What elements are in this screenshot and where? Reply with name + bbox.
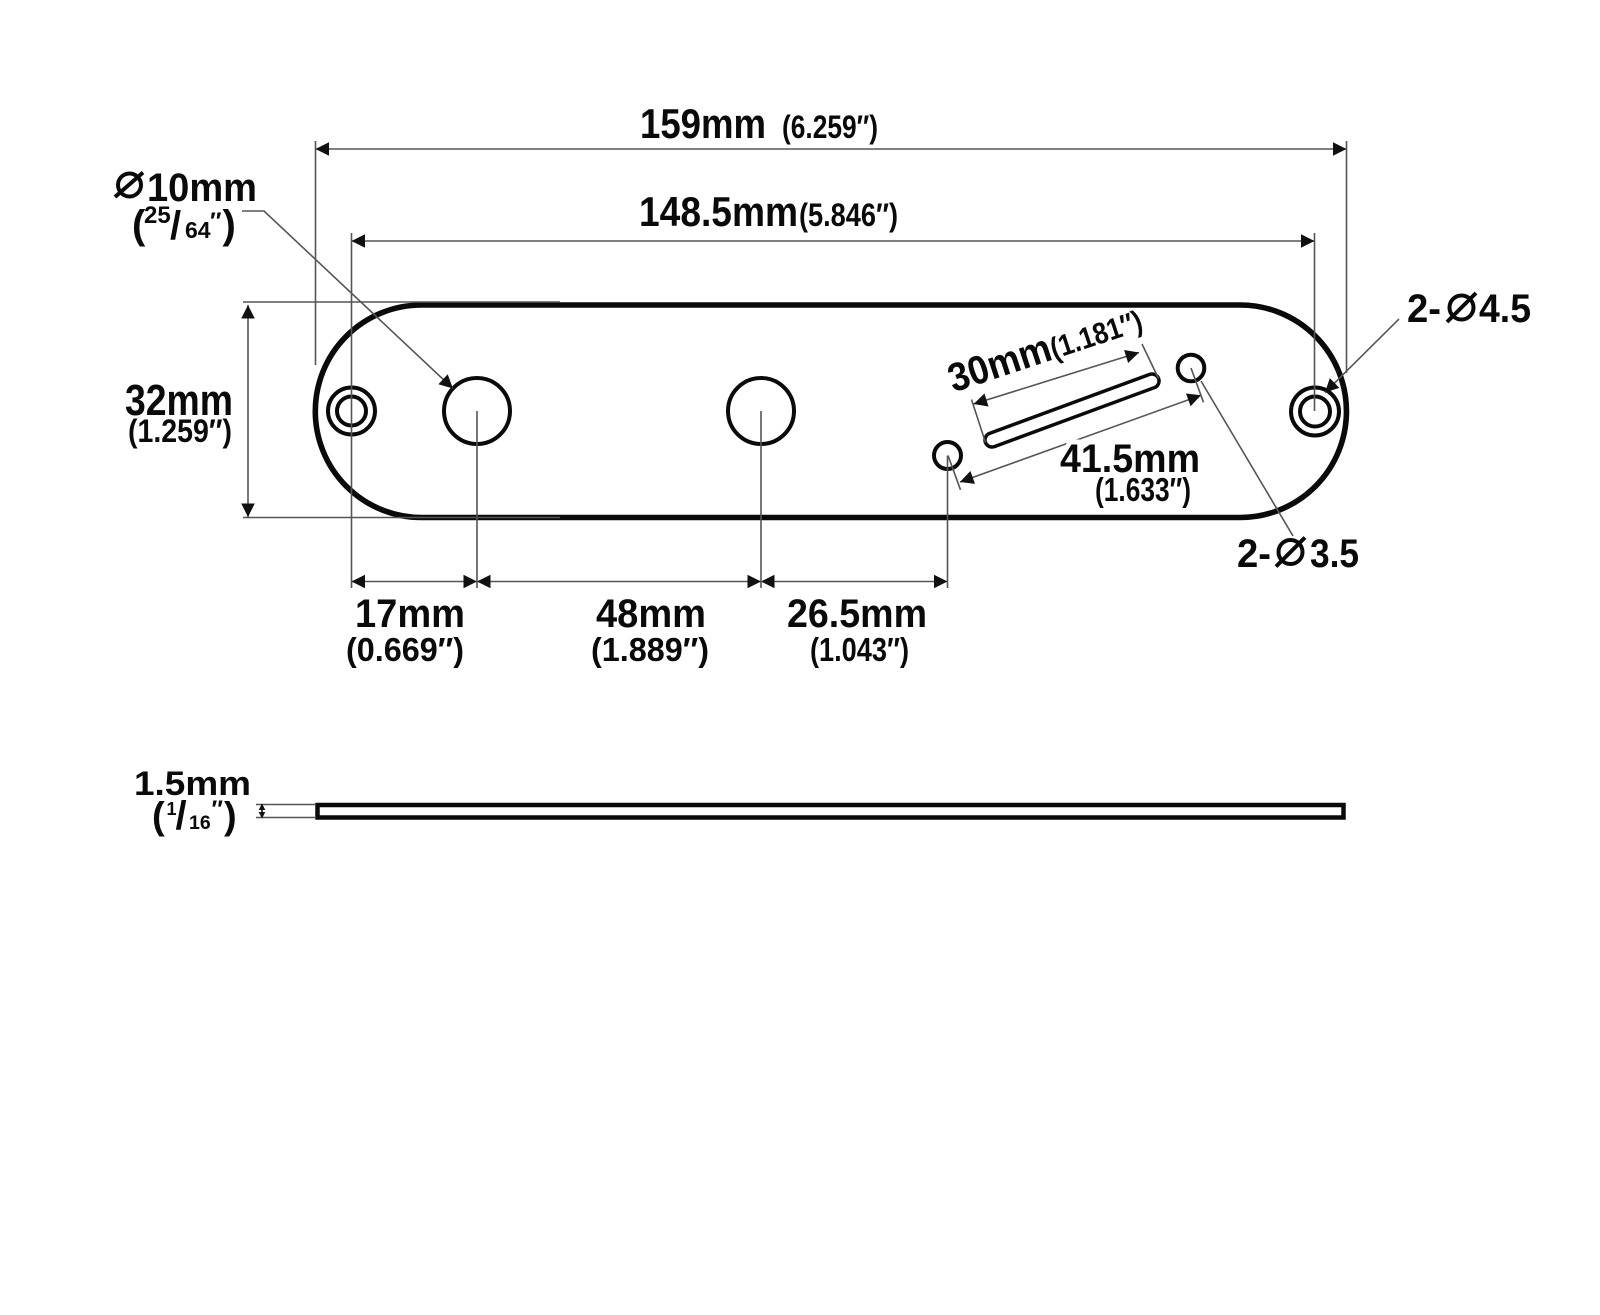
svg-text:(6.259″): (6.259″) [782, 109, 878, 145]
svg-text:(0.669″): (0.669″) [346, 631, 464, 668]
svg-text:(1.043″): (1.043″) [810, 631, 909, 668]
svg-text:(1.633″): (1.633″) [1095, 471, 1191, 508]
svg-text:(: ( [152, 796, 165, 838]
svg-text:″: ″ [212, 796, 224, 823]
svg-text:17mm: 17mm [355, 592, 465, 636]
svg-text:): ) [224, 796, 237, 838]
svg-text:): ) [223, 203, 236, 247]
svg-text:16: 16 [189, 812, 211, 834]
svg-text:26.5mm: 26.5mm [787, 592, 927, 636]
svg-text:2-: 2- [1407, 287, 1441, 331]
svg-text:(1.889″): (1.889″) [591, 631, 709, 668]
svg-text:48mm: 48mm [596, 592, 706, 636]
svg-text:/: / [170, 204, 181, 248]
svg-text:3.5: 3.5 [1310, 532, 1359, 576]
svg-text:(5.846″): (5.846″) [799, 197, 898, 233]
svg-text:″: ″ [210, 208, 222, 235]
svg-text:4.5: 4.5 [1479, 287, 1531, 331]
svg-text:(1.259″): (1.259″) [128, 413, 232, 449]
svg-text:2-: 2- [1237, 532, 1271, 576]
svg-text:148.5mm: 148.5mm [639, 188, 798, 235]
svg-text:64: 64 [185, 217, 211, 243]
svg-text:25: 25 [144, 202, 171, 229]
svg-text:159mm: 159mm [640, 100, 766, 147]
svg-text:/: / [176, 794, 187, 838]
